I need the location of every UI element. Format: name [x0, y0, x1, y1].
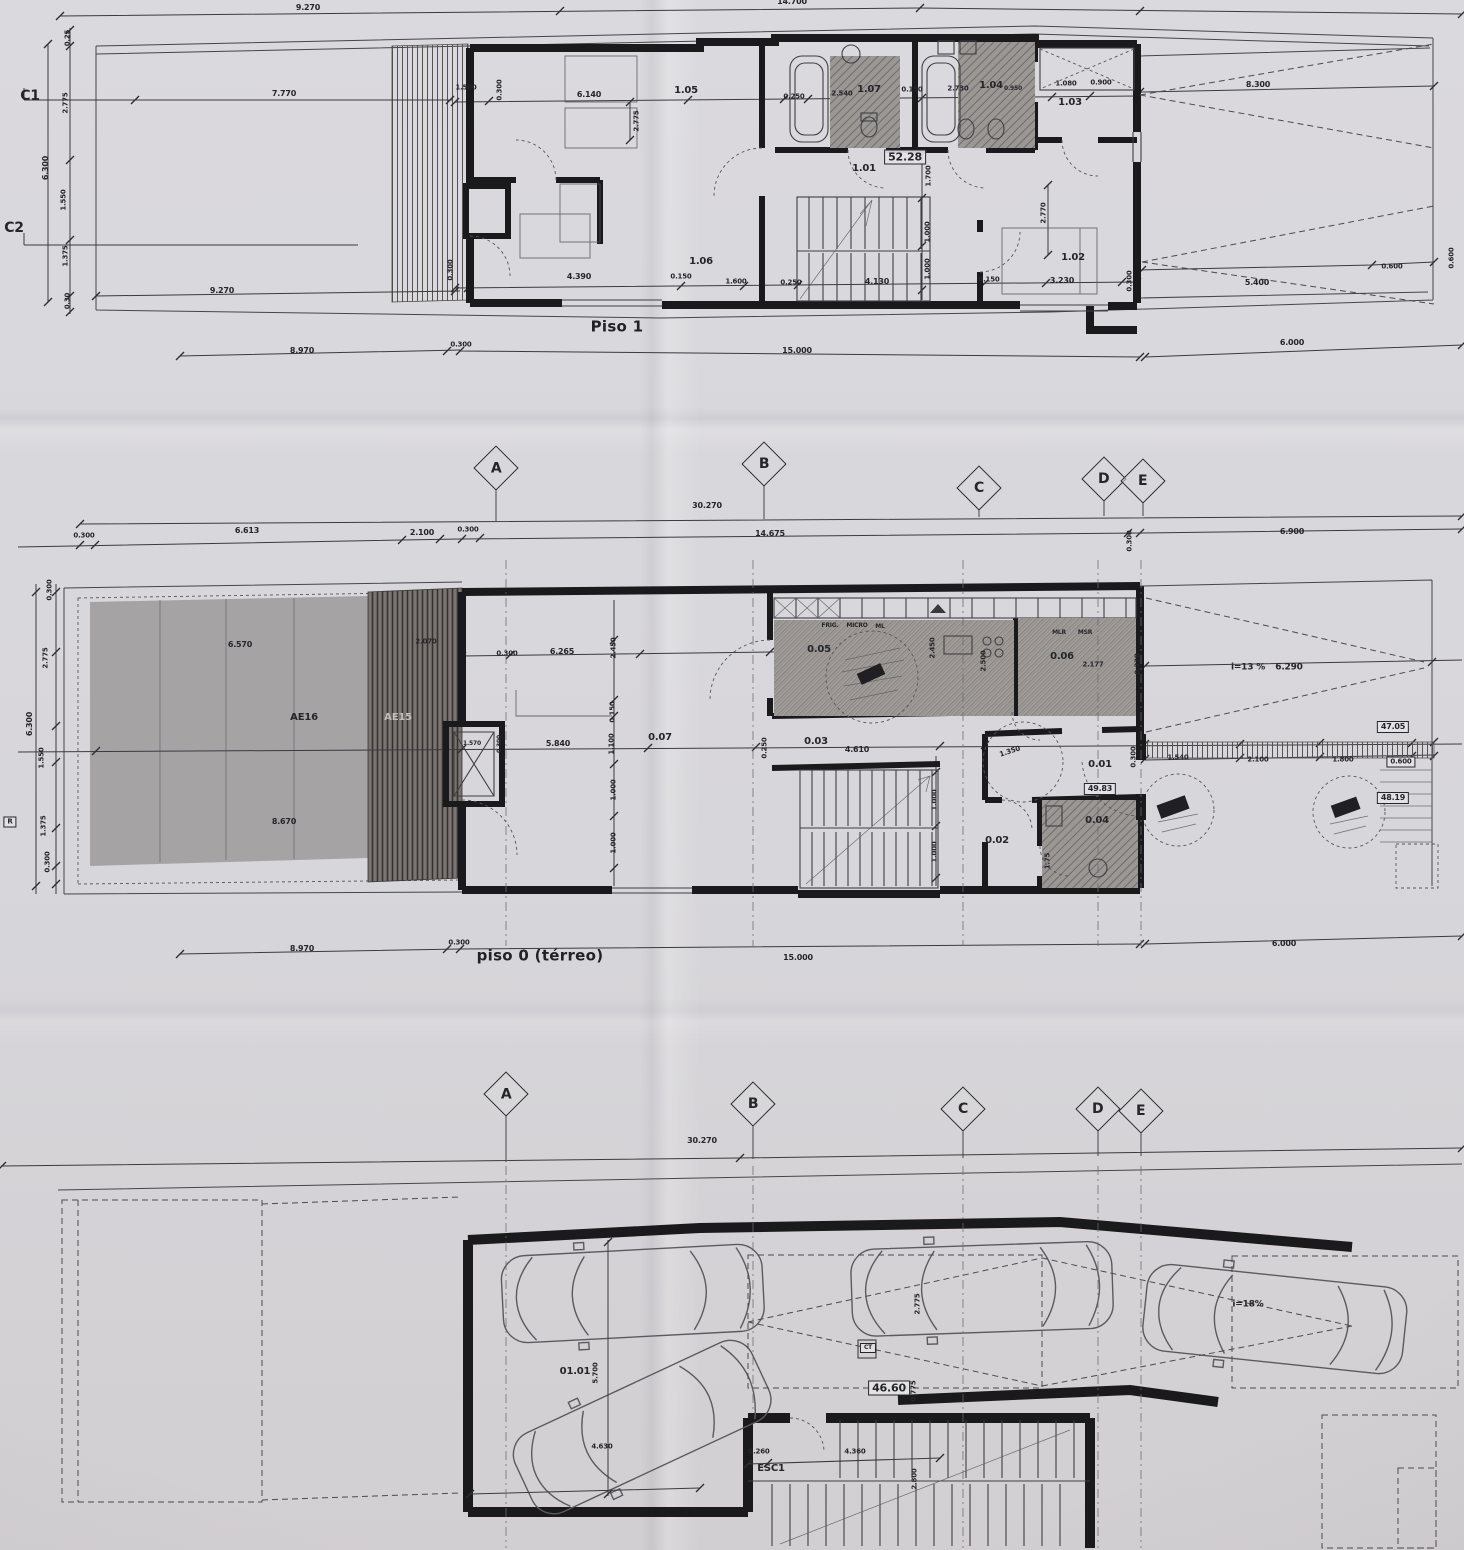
grid-marker-letter: A: [501, 1086, 512, 1102]
plan-piso0: [18, 560, 1464, 958]
deck-hatch: [392, 44, 468, 302]
ct-box: [858, 1340, 876, 1358]
grid-marker-letter: D: [1092, 1101, 1104, 1117]
grid-marker-letter: D: [1098, 471, 1110, 487]
kitchen-006-hatch: [1018, 618, 1136, 716]
plan-piso1: [24, 4, 1464, 361]
grid-marker-letter: A: [491, 460, 502, 476]
bathroom-104-hatch: [958, 42, 1035, 148]
bathroom-107-hatch: [830, 56, 900, 148]
piso1-partitions: [466, 38, 1137, 306]
grid-marker-letter: C: [974, 480, 984, 496]
grid-row-lower: [0, 1115, 1464, 1170]
car-2: [850, 1231, 1115, 1347]
esc1-stairs: [748, 1420, 1090, 1546]
grid-marker-letter: E: [1138, 473, 1148, 489]
piso0-stairs: [800, 770, 938, 888]
piso1-stairs: [797, 197, 930, 301]
parking-bay-dashed: [748, 1255, 1042, 1388]
kitchen-cabinets: [774, 598, 1136, 618]
car-3-angled: [501, 1323, 783, 1530]
garden-ae16: [90, 596, 368, 866]
garage-walls: [468, 1222, 1352, 1548]
plan-basement: [58, 1164, 1462, 1548]
grid-marker-letter: B: [748, 1096, 759, 1112]
plan-linework: [0, 0, 1464, 1550]
grid-marker-letter: B: [759, 456, 770, 472]
wc-004-hatch: [1042, 800, 1138, 888]
car-1: [500, 1233, 766, 1354]
grid-marker-letter: E: [1136, 1103, 1146, 1119]
grid-row-upper: [18, 485, 1464, 549]
scanned-floor-plan-sheet: 9.27014.700C1C20.252.7756.3001.5501.3750…: [0, 0, 1464, 1550]
kitchen-005-hatch: [774, 620, 1014, 716]
grid-marker-letter: C: [958, 1101, 968, 1117]
car-4-ramp: [1139, 1252, 1410, 1386]
